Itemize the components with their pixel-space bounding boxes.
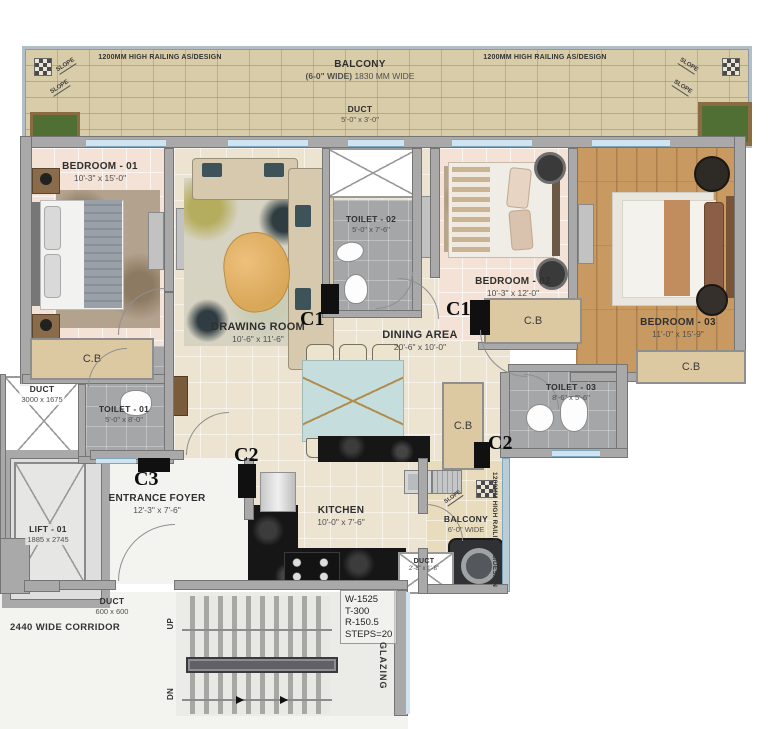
room-name: BEDROOM - 01 bbox=[62, 160, 138, 173]
pillow bbox=[508, 209, 533, 251]
duct-top-label: DUCT 5'-0" x 3'-0" bbox=[341, 104, 379, 125]
wall bbox=[24, 580, 60, 592]
wall bbox=[58, 580, 116, 590]
duct-left-label: DUCT 3000 x 1675 bbox=[19, 384, 64, 405]
stair-treads bbox=[190, 596, 330, 714]
room-dim: 12'-3" x 7'-6" bbox=[109, 505, 206, 516]
railing-strip bbox=[502, 458, 510, 592]
direction-arrow bbox=[236, 696, 244, 704]
stair-landing-bar bbox=[186, 657, 338, 673]
room-dim: 5'-0" x 8'-0" bbox=[99, 415, 149, 425]
pillow bbox=[44, 254, 61, 298]
wall bbox=[430, 148, 440, 278]
room-name: KITCHEN bbox=[317, 504, 365, 517]
room-name: TOILET - 02 bbox=[346, 214, 396, 225]
dresser bbox=[148, 212, 164, 270]
room-dim: 2'-8" x 1'-8" bbox=[409, 566, 439, 574]
wall bbox=[78, 384, 86, 464]
stair-note: W-1525 bbox=[345, 594, 392, 606]
wall bbox=[734, 136, 746, 382]
window bbox=[552, 450, 600, 457]
duct-corridor-label: DUCT 600 x 600 bbox=[96, 596, 129, 617]
side-table bbox=[696, 284, 728, 316]
railing-note-right: 1200MM HIGH RAILING AS/DESIGN bbox=[483, 54, 606, 61]
blanket bbox=[452, 166, 490, 252]
column-label-c2: C2 bbox=[234, 444, 258, 467]
column-label-c2: C2 bbox=[488, 432, 512, 455]
up-line bbox=[182, 629, 332, 631]
bedroom3-label: BEDROOM - 03 11'-0" x 15'-9" bbox=[640, 316, 716, 340]
balcony-size: 1830 MM WIDE bbox=[354, 71, 414, 81]
drawing-room-label: DRAWING ROOM 10'-6" x 11'-6" bbox=[211, 320, 305, 345]
window bbox=[452, 139, 532, 147]
drain-grate bbox=[722, 58, 740, 76]
room-name: ENTRANCE FOYER bbox=[109, 492, 206, 505]
bedroom2-label: BEDROOM - 02 10'-3" x 12'-0" bbox=[475, 275, 551, 299]
room-name: DUCT bbox=[409, 557, 439, 566]
balcony-top-label: BALCONY (6-0" WIDE) 1830 MM WIDE bbox=[306, 58, 415, 82]
room-dim: 5'-0" x 7'-6" bbox=[346, 225, 396, 235]
sofa-cushion bbox=[264, 163, 284, 177]
fridge bbox=[260, 472, 296, 512]
room-dim: 10'-3" x 15'-0" bbox=[62, 173, 138, 184]
cupboard: C.B bbox=[636, 350, 746, 384]
stairs-up-label: UP bbox=[166, 618, 175, 630]
window bbox=[96, 458, 136, 464]
cupboard-label: C.B bbox=[682, 361, 700, 373]
wall bbox=[174, 580, 408, 590]
blanket bbox=[664, 200, 690, 296]
pillow bbox=[44, 206, 61, 250]
bedroom1-label: BEDROOM - 01 10'-3" x 15'-0" bbox=[62, 160, 138, 184]
duct-shaft bbox=[328, 148, 418, 198]
lift-label: LIFT - 01 1885 x 2745 bbox=[25, 524, 70, 545]
pillow bbox=[506, 167, 532, 209]
room-name: TOILET - 03 bbox=[546, 382, 596, 393]
room-dim: 11'-0" x 15'-9" bbox=[640, 329, 716, 340]
toilet1-label: TOILET - 01 5'-0" x 8'-0" bbox=[99, 404, 149, 425]
room-dim: 10'-6" x 11'-6" bbox=[211, 334, 305, 345]
toilet2-label: TOILET - 02 5'-0" x 7'-6" bbox=[346, 214, 396, 235]
balcony-size-bold: (6-0" WIDE) bbox=[306, 71, 353, 81]
wall bbox=[164, 292, 174, 464]
room-name: BEDROOM - 02 bbox=[475, 275, 551, 288]
room-name: DRAWING ROOM bbox=[211, 320, 305, 334]
glazing-strip bbox=[406, 592, 410, 714]
wardrobe bbox=[578, 204, 594, 264]
corridor-label: 2440 WIDE CORRIDOR bbox=[10, 622, 120, 633]
stair-note: T-300 bbox=[345, 606, 392, 618]
column-label-c3: C3 bbox=[134, 468, 158, 491]
room-name: BALCONY bbox=[444, 514, 488, 525]
wall bbox=[164, 148, 174, 292]
room-dim: 10'-3" x 12'-0" bbox=[475, 288, 551, 299]
dn-line bbox=[182, 699, 332, 701]
lamp bbox=[40, 173, 52, 185]
room-name: DUCT bbox=[19, 384, 64, 395]
room-dim: 1885 x 2745 bbox=[25, 535, 70, 545]
room-dim: 10'-0" x 7'-6" bbox=[317, 517, 365, 528]
toilet-wc bbox=[344, 274, 368, 304]
blanket bbox=[84, 200, 122, 308]
railing-note-left: 1200MM HIGH RAILING AS/DESIGN bbox=[98, 54, 221, 61]
wall bbox=[616, 364, 628, 458]
cupboard-label: C.B bbox=[524, 315, 542, 327]
direction-arrow bbox=[280, 696, 288, 704]
stairs-dn-label: DN bbox=[166, 688, 175, 700]
stair-note: R-150.5 bbox=[345, 617, 392, 629]
window bbox=[592, 139, 670, 147]
dining-area-label: DINING AREA 20'-6" x 10'-0" bbox=[382, 328, 458, 353]
room-dim: 20'-6" x 10'-0" bbox=[382, 342, 458, 353]
cupboard-label: C.B bbox=[454, 420, 472, 432]
balcony-top-name: BALCONY bbox=[306, 58, 415, 71]
sofa-cushion bbox=[295, 288, 311, 310]
foyer-label: ENTRANCE FOYER 12'-3" x 7'-6" bbox=[109, 492, 206, 516]
duct-small-label: DUCT 2'-8" x 1'-8" bbox=[409, 557, 439, 574]
floor-plan: SLOPE SLOPE SLOPE SLOPE 1200MM HIGH RAIL… bbox=[0, 0, 768, 729]
room-dim: 600 x 600 bbox=[96, 607, 129, 617]
railing-side-label: 1200MM HIGH RAILING AS/DESIGN bbox=[491, 472, 498, 590]
kitchen-label: KITCHEN 10'-0" x 7'-6" bbox=[317, 504, 365, 528]
window bbox=[228, 139, 308, 147]
room-dim: 8'-6" x 5'-6" bbox=[546, 393, 596, 403]
duct-top-name: DUCT bbox=[341, 104, 379, 115]
lamp bbox=[40, 319, 52, 331]
dining-table bbox=[302, 360, 404, 442]
balcony2-label: BALCONY 6'-0" WIDE bbox=[444, 514, 488, 535]
room-name: LIFT - 01 bbox=[25, 524, 70, 535]
stair-note: STEPS=20 bbox=[345, 629, 392, 641]
toilet3-label: TOILET - 03 8'-6" x 5'-6" bbox=[546, 382, 596, 403]
sofa-cushion bbox=[295, 205, 311, 227]
column bbox=[238, 464, 256, 498]
kitchen-counter bbox=[318, 436, 430, 462]
sofa-cushion bbox=[202, 163, 222, 177]
glazing-label: GLAZING bbox=[378, 642, 388, 690]
room-name: DINING AREA bbox=[382, 328, 458, 342]
room-name: BEDROOM - 03 bbox=[640, 316, 716, 329]
room-name: DUCT bbox=[96, 596, 129, 607]
pillow bbox=[704, 202, 724, 296]
side-table bbox=[694, 156, 730, 192]
room-name: TOILET - 01 bbox=[99, 404, 149, 415]
window bbox=[348, 139, 404, 147]
duct-top-dim: 5'-0" x 3'-0" bbox=[341, 115, 379, 125]
room-dim: 6'-0" WIDE bbox=[444, 525, 488, 535]
stair-notes: W-1525 T-300 R-150.5 STEPS=20 bbox=[340, 590, 397, 644]
balcony-top-size: (6-0" WIDE) 1830 MM WIDE bbox=[306, 71, 415, 82]
window bbox=[86, 139, 166, 147]
column-label-c1: C1 bbox=[446, 298, 470, 321]
drain-grate bbox=[34, 58, 52, 76]
room-dim: 3000 x 1675 bbox=[19, 395, 64, 405]
column-label-c1: C1 bbox=[300, 308, 324, 331]
ceiling-speaker bbox=[534, 152, 566, 184]
